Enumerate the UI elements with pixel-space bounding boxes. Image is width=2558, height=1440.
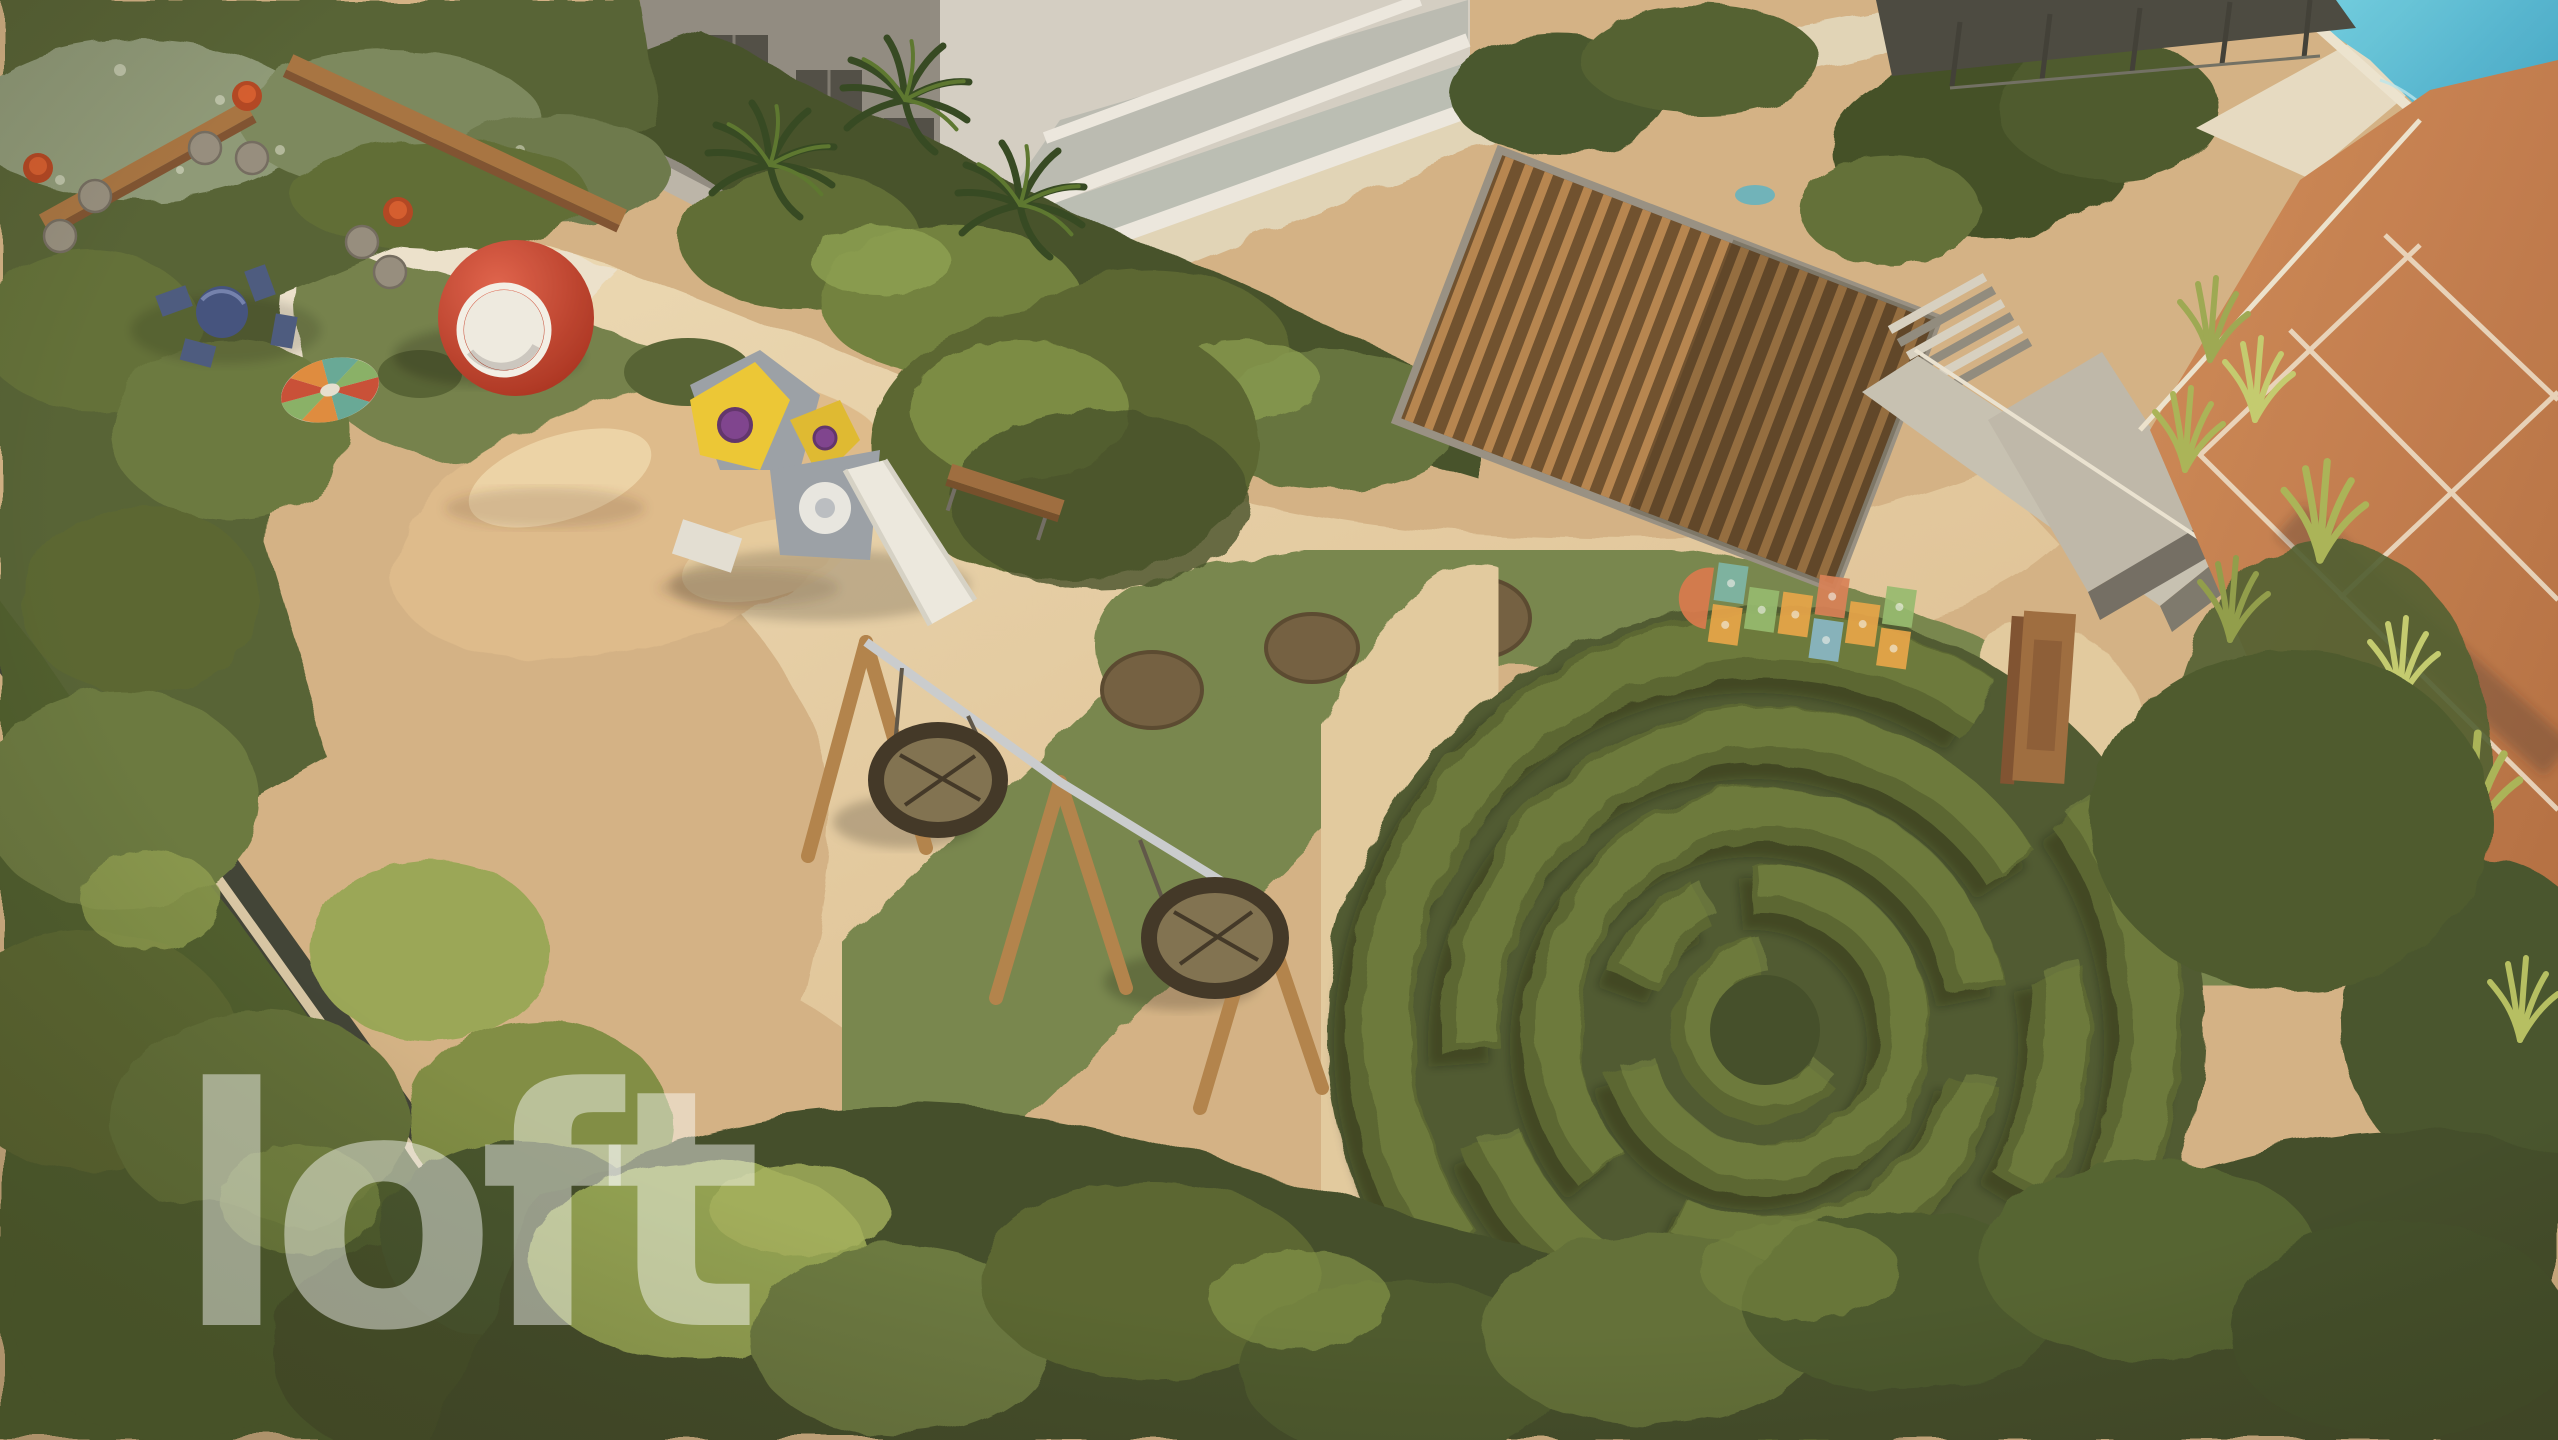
aerial-render: loft [0, 0, 2558, 1440]
watermark: loft [175, 1019, 759, 1403]
scene-canvas: loft [0, 0, 2558, 1440]
